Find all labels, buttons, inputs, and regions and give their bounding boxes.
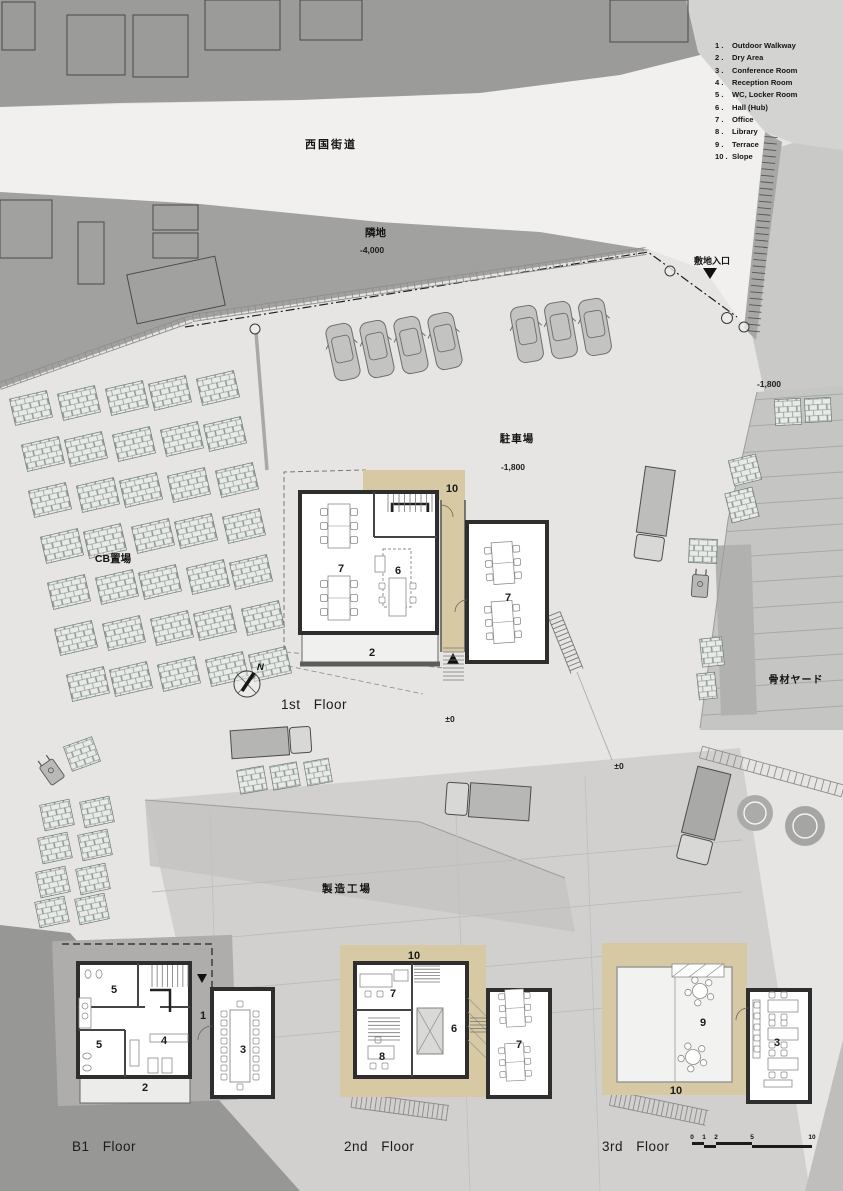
legend-item: 3 .Conference Room <box>715 65 843 77</box>
room-7b-f1: 7 <box>505 592 511 604</box>
room-10-f1: 10 <box>446 483 458 495</box>
first-floor-label: 1st Floor <box>281 697 347 712</box>
b1-floor-label: B1 Floor <box>72 1139 136 1154</box>
legend-item-label: Office <box>732 114 754 126</box>
legend-item: 2 .Dry Area <box>715 52 843 64</box>
legend-item-number: 6 . <box>715 102 732 114</box>
cb-stack <box>304 758 333 786</box>
desk-cluster <box>321 504 358 548</box>
cb-stack <box>774 398 801 425</box>
room-9-f3: 9 <box>700 1017 706 1029</box>
legend-item-number: 1 . <box>715 40 732 52</box>
cb-stack <box>700 637 725 667</box>
room-7-f2: 7 <box>390 988 396 1000</box>
room-2-b1: 2 <box>142 1082 148 1094</box>
room-7-f1: 7 <box>338 563 344 575</box>
legend-item-number: 8 . <box>715 126 732 138</box>
scale-tick-5: 5 <box>750 1134 754 1141</box>
cb-stack <box>270 762 301 790</box>
parking-label: 駐車場 <box>500 432 535 445</box>
cb-stack <box>697 672 718 700</box>
stairs <box>368 1018 400 1040</box>
room-3-f3: 3 <box>774 1037 780 1049</box>
adjacent-level-label: -4,000 <box>360 245 384 255</box>
truck <box>445 781 531 821</box>
legend-item-label: Reception Room <box>732 77 792 89</box>
legend-item-number: 5 . <box>715 89 732 101</box>
room-5-b1: 5 <box>111 984 117 996</box>
scale-tick-10: 10 <box>808 1134 816 1141</box>
room-5b-b1: 5 <box>96 1039 102 1051</box>
level-zero-2-label: ±0 <box>614 761 624 771</box>
legend-item: 7 .Office <box>715 114 843 126</box>
room-7b-f2: 7 <box>516 1039 522 1051</box>
room-6-f1: 6 <box>395 565 401 577</box>
legend-item-number: 7 . <box>715 114 732 126</box>
legend-item-label: Dry Area <box>732 52 763 64</box>
legend-item-label: Hall (Hub) <box>732 102 768 114</box>
room-2-f1: 2 <box>369 647 375 659</box>
legend-item: 6 .Hall (Hub) <box>715 102 843 114</box>
legend-item-label: Outdoor Walkway <box>732 40 796 52</box>
legend-item: 8 .Library <box>715 126 843 138</box>
legend-item-label: Terrace <box>732 139 759 151</box>
room-3-b1: 3 <box>240 1044 246 1056</box>
site-entrance-label: 敷地入口 <box>694 255 730 266</box>
room-6-f2: 6 <box>451 1023 457 1035</box>
legend-item: 1 .Outdoor Walkway <box>715 40 843 52</box>
cb-stack <box>689 539 718 564</box>
legend-item-label: Library <box>732 126 758 138</box>
legend-item-number: 4 . <box>715 77 732 89</box>
legend-item: 4 .Reception Room <box>715 77 843 89</box>
legend-item-label: Slope <box>732 151 753 163</box>
legend-item-number: 10 . <box>715 151 732 163</box>
legend-item-number: 3 . <box>715 65 732 77</box>
legend-item: 5 .WC, Locker Room <box>715 89 843 101</box>
legend-item-label: Conference Room <box>732 65 797 77</box>
room-4-b1: 4 <box>161 1035 168 1047</box>
desk-cluster <box>321 576 358 620</box>
legend-item: 9 .Terrace <box>715 139 843 151</box>
legend-item-number: 2 . <box>715 52 732 64</box>
scale-tick-1: 1 <box>702 1134 706 1141</box>
legend-item: 10 .Slope <box>715 151 843 163</box>
level-east-label: -1,800 <box>757 379 781 389</box>
room-10-f2: 10 <box>408 950 420 962</box>
north-compass <box>234 671 260 697</box>
desk-cluster <box>484 600 522 644</box>
north-label: N <box>257 662 265 673</box>
desk-cluster <box>484 541 522 585</box>
cb-stack <box>237 766 268 794</box>
legend-item-label: WC, Locker Room <box>732 89 797 101</box>
adjacent-lot-label: 隣地 <box>365 226 386 239</box>
level-zero-1-label: ±0 <box>445 714 455 724</box>
cb-yard-label: CB置場 <box>95 552 132 565</box>
third-floor-label: 3rd Floor <box>602 1139 670 1154</box>
legend-item-number: 9 . <box>715 139 732 151</box>
site-plan-svg: 0 1 2 5 10 西国街道 隣地 -4,000 敷地入口 -1,800 駐車… <box>0 0 843 1191</box>
legend: 1 .Outdoor Walkway2 .Dry Area3 .Conferen… <box>715 40 843 163</box>
second-floor-label: 2nd Floor <box>344 1139 415 1154</box>
scale-tick-2: 2 <box>714 1134 718 1141</box>
parking-level-label: -1,800 <box>501 462 525 472</box>
room-10-f3: 10 <box>670 1085 682 1097</box>
factory-label: 製造工場 <box>321 882 372 895</box>
room-8-f2: 8 <box>379 1051 385 1063</box>
cb-stack <box>804 397 831 422</box>
site-plan-drawing: 0 1 2 5 10 西国街道 隣地 -4,000 敷地入口 -1,800 駐車… <box>0 0 843 1191</box>
aggregate-yard-label: 骨材ヤード <box>769 673 824 686</box>
dry-area-2 <box>80 1077 190 1103</box>
scale-tick-0: 0 <box>690 1134 694 1141</box>
road-name-label: 西国街道 <box>305 137 357 151</box>
desk-cluster <box>498 989 531 1028</box>
room-1-b1: 1 <box>200 1010 206 1022</box>
